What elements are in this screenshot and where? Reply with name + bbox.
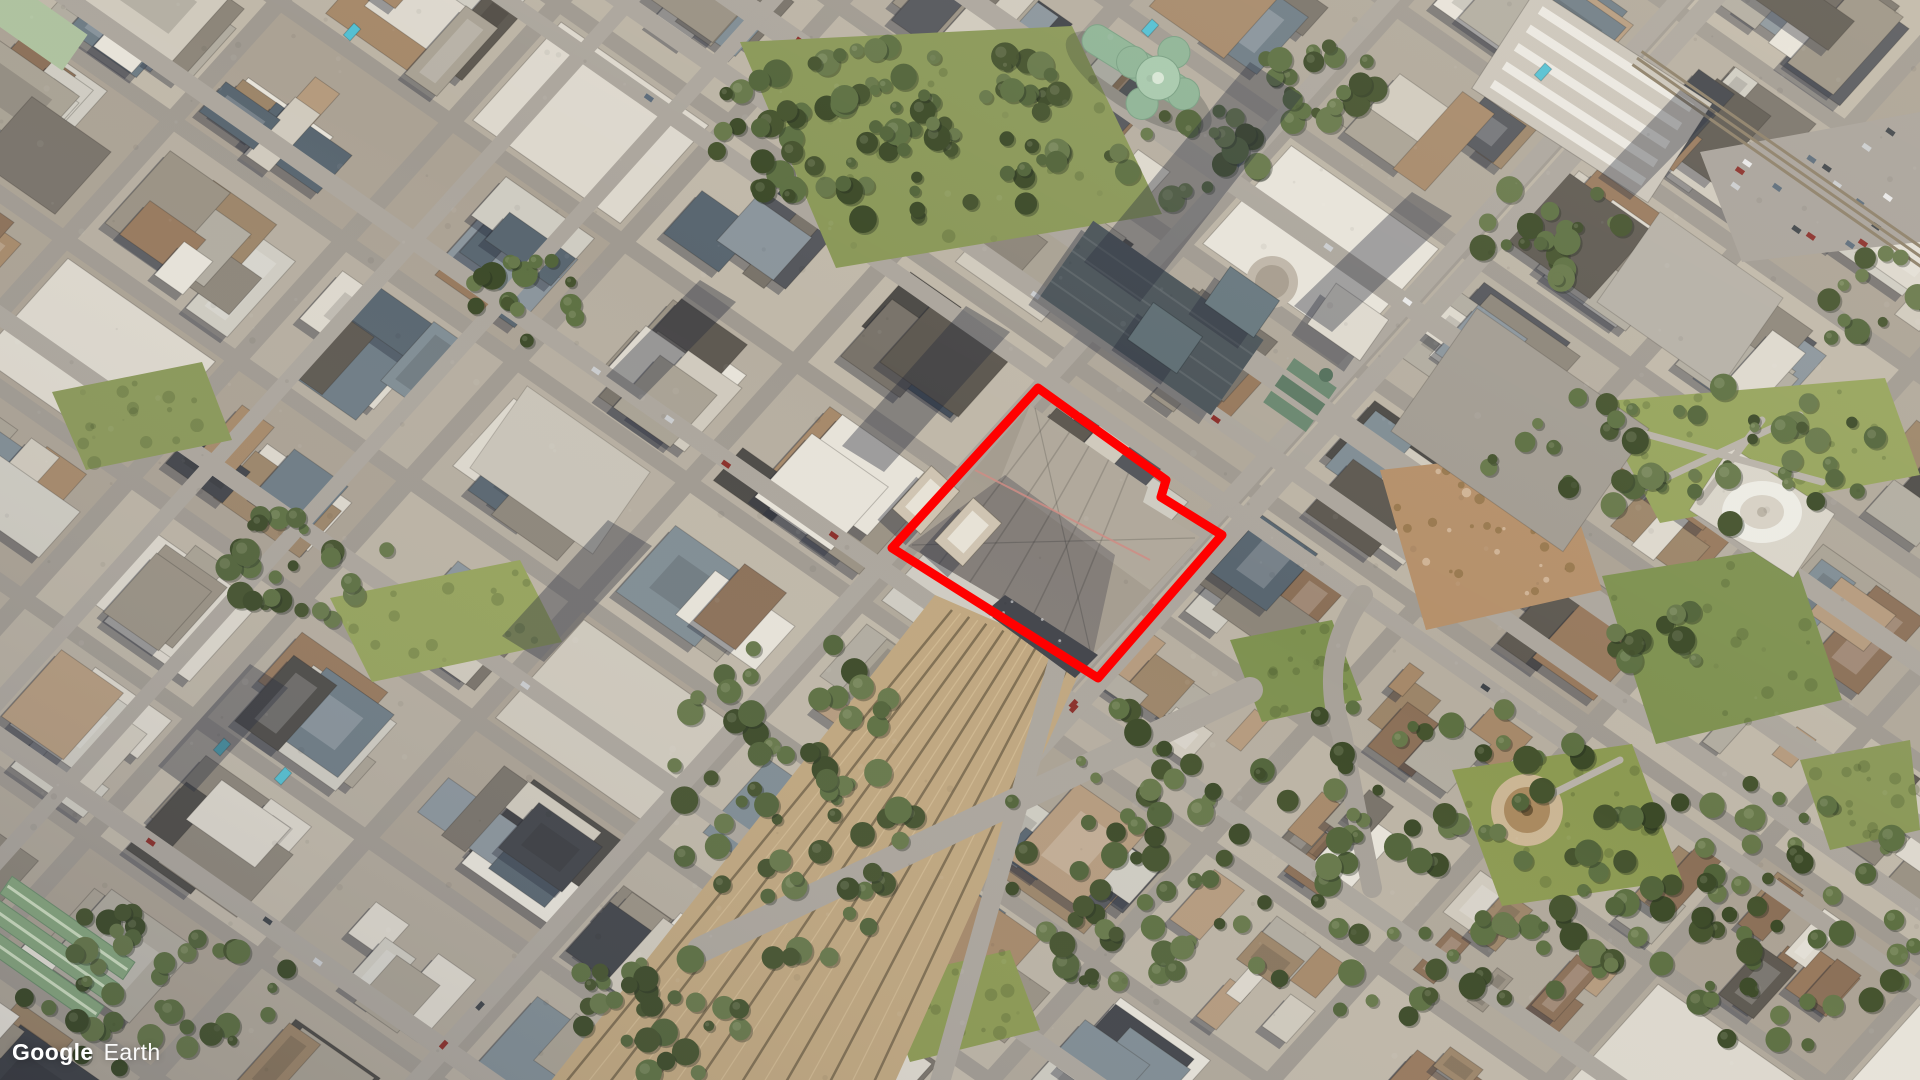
google-earth-watermark: Google Earth [12,1039,161,1066]
satellite-scene [0,0,1920,1080]
google-earth-canvas[interactable]: Google Earth [0,0,1920,1080]
watermark-product: Earth [104,1039,161,1066]
watermark-brand: Google [12,1039,94,1066]
aerial-imagery [0,0,1920,1080]
